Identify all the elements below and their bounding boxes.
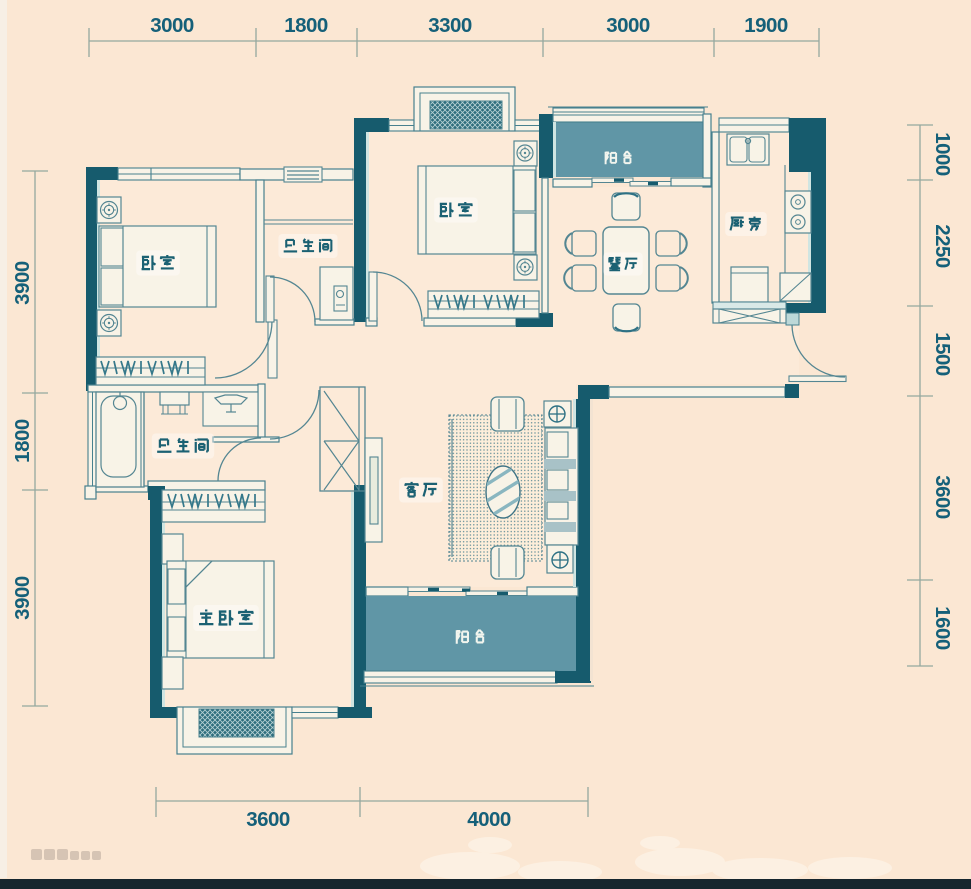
svg-text:3900: 3900	[11, 576, 34, 620]
svg-text:3000: 3000	[150, 14, 194, 37]
svg-text:3900: 3900	[11, 261, 34, 305]
svg-text:3600: 3600	[931, 475, 954, 519]
svg-text:1800: 1800	[284, 14, 328, 37]
svg-text:3600: 3600	[246, 808, 290, 831]
svg-text:2250: 2250	[931, 224, 954, 268]
svg-text:4000: 4000	[467, 808, 511, 831]
svg-text:3300: 3300	[428, 14, 472, 37]
svg-text:1800: 1800	[11, 419, 34, 463]
svg-text:1000: 1000	[931, 132, 954, 176]
svg-text:1600: 1600	[931, 606, 954, 650]
svg-text:1500: 1500	[931, 332, 954, 376]
svg-text:1900: 1900	[744, 14, 788, 37]
svg-text:3000: 3000	[606, 14, 650, 37]
